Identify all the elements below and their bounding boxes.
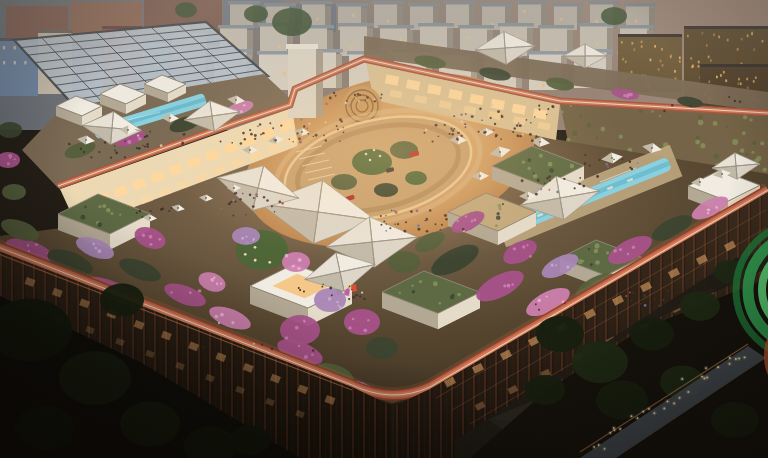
overlays: [0, 0, 768, 458]
scene-canvas: [0, 0, 768, 458]
sky-haze: [0, 0, 768, 120]
rendering-stage: [0, 0, 768, 458]
